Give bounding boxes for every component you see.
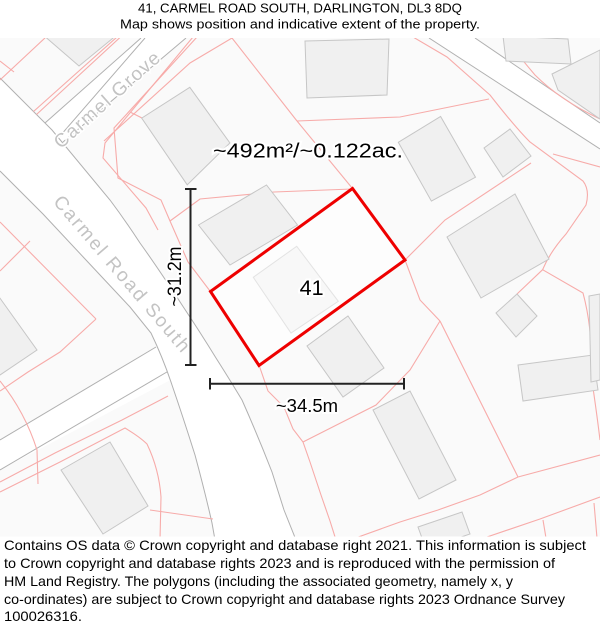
svg-text:41, CARMEL ROAD SOUTH, DARLING: 41, CARMEL ROAD SOUTH, DARLINGTON, DL3 8…	[138, 0, 462, 15]
svg-text:41: 41	[300, 276, 324, 300]
svg-text:~492m²/~0.122ac.: ~492m²/~0.122ac.	[213, 141, 403, 163]
svg-text:to Crown copyright and databas: to Crown copyright and database rights 2…	[4, 556, 555, 571]
svg-text:Map shows position and indicat: Map shows position and indicative extent…	[120, 16, 480, 31]
svg-text:HM Land Registry. The polygons: HM Land Registry. The polygons (includin…	[4, 574, 513, 589]
svg-text:co-ordinates) are subject to C: co-ordinates) are subject to Crown copyr…	[4, 592, 565, 607]
svg-text:Contains OS data © Crown copyr: Contains OS data © Crown copyright and d…	[4, 538, 586, 553]
svg-text:~31.2m: ~31.2m	[164, 247, 186, 307]
svg-text:~34.5m: ~34.5m	[276, 395, 338, 416]
svg-text:100026316.: 100026316.	[4, 609, 82, 624]
